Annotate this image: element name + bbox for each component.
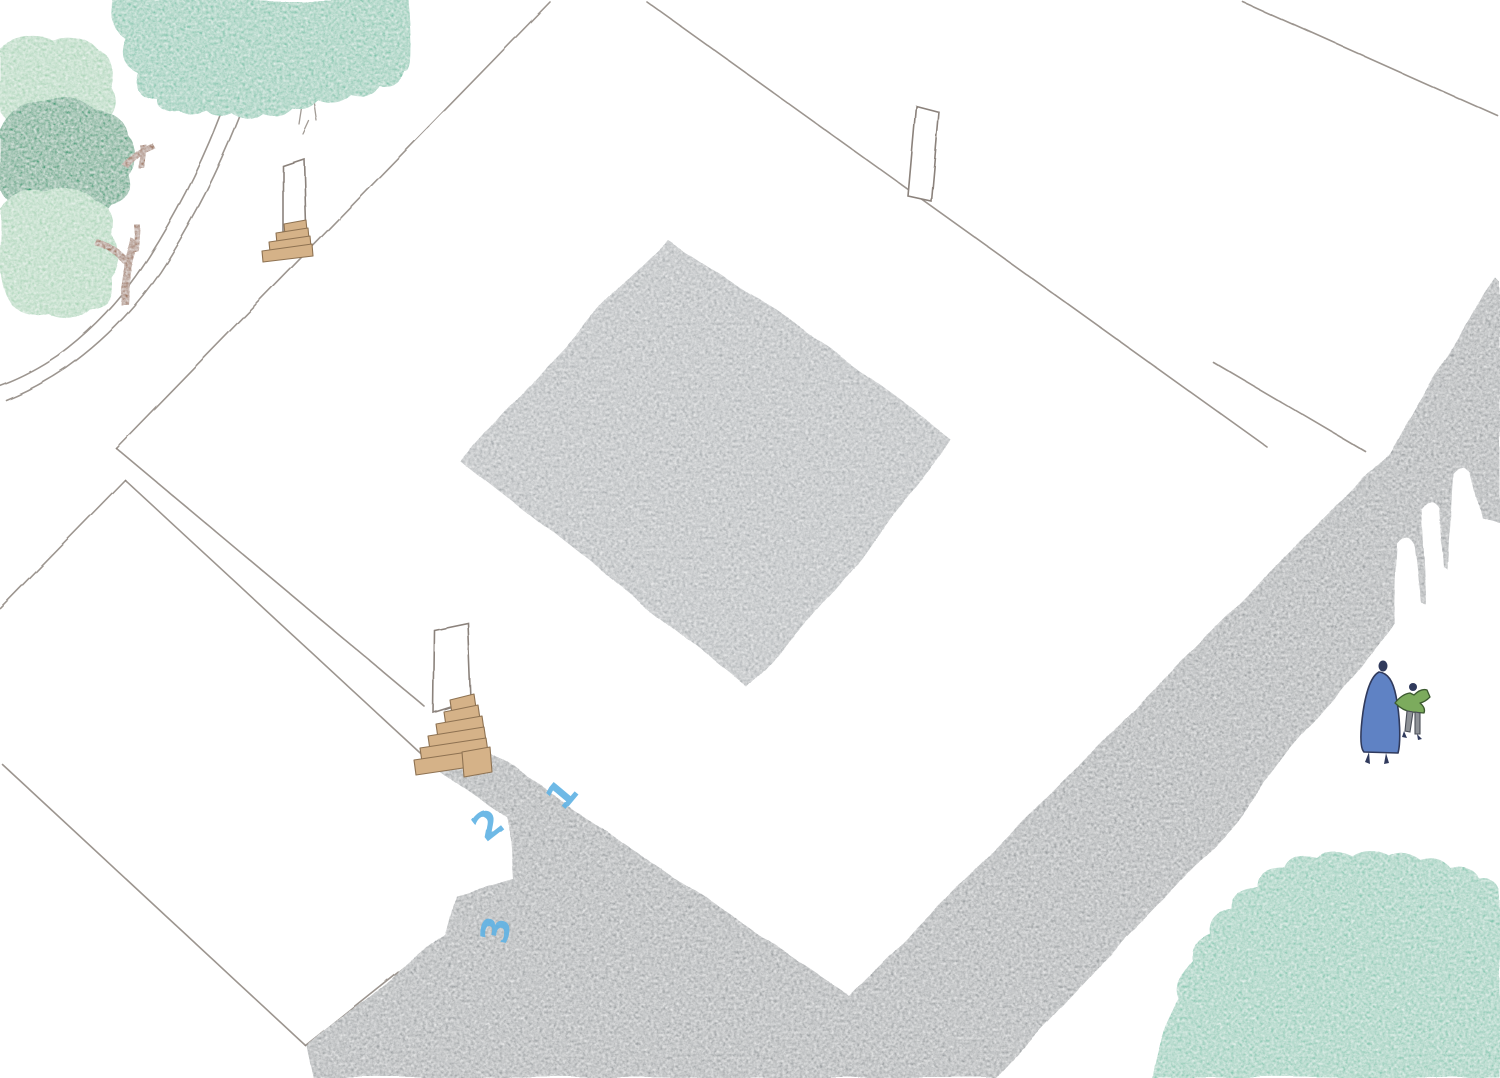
site-plan-drawing: 1 2 3: [0, 0, 1500, 1078]
steps-side-block: [462, 747, 492, 777]
child-head: [1409, 683, 1417, 691]
illustration-canvas: 1 2 3: [0, 0, 1500, 1078]
adult-head: [1379, 661, 1388, 672]
tree-pale-lower: [0, 188, 118, 319]
